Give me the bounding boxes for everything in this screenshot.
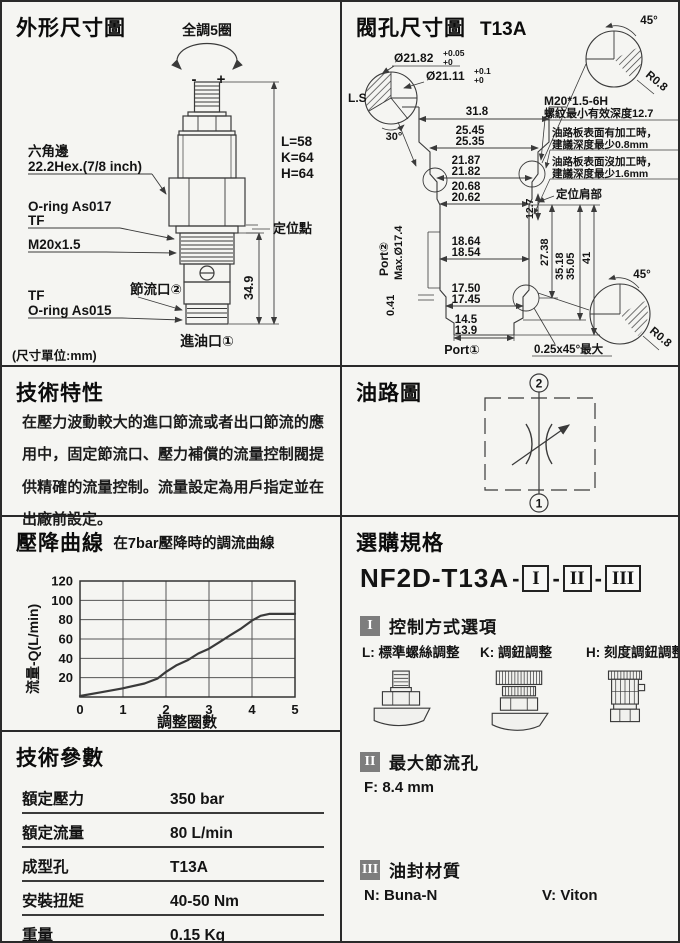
section3-heading: III 油封材質 [360,857,461,882]
outline-drawing: 全調5圈 - + 六角邊 22.2Hex.(7/8 inch) L=58 K=6… [2,2,342,367]
svg-text:20: 20 [59,670,73,685]
hex-label-size: 22.2Hex.(7/8 inch) [28,159,142,174]
angle-30: 30° [386,131,403,143]
turns-label: 全調5圈 [181,22,232,38]
dia1-label: Ø21.82 [394,51,434,65]
section2-heading: II 最大節流孔 [360,749,479,774]
param-value: 350 bar [170,791,224,809]
svg-text:4: 4 [248,702,256,717]
param-value: 80 L/min [170,825,233,843]
cavity-title-text: 閥孔尺寸圖 [356,17,466,40]
chart-title: 在7bar壓降時的調流曲線 [113,534,275,552]
model-segment-3: III [605,565,641,592]
option-K: K: 調鈕調整 [480,641,586,735]
model-code: NF2D-T13A - I - II - III [360,563,641,594]
orifice-value: F: 8.4 mm [364,779,434,796]
param-value: 0.15 Kg [170,927,225,943]
circuit-panel-title: 油路圖 [356,377,422,407]
machined-note-2: 建議深度最少0.8mm [551,138,648,151]
ls-label: L.S [348,91,367,105]
dim-041: 0.41 [385,295,397,316]
section1-heading: I 控制方式選項 [360,613,497,638]
dim-H: H=64 [281,166,314,181]
param-label: 安裝扭矩 [22,889,170,911]
unmachined-note-2: 建議深度最少1.6mm [551,167,648,180]
panel-cavity-dimensions: L.S Ø21.82 +0.05 +0 Ø21.11 +0.1 +0 30° 4… [342,2,680,367]
shoulder-label: 定位肩部 [556,187,602,201]
r08-top: R0.8 [643,69,670,94]
seal-option-n: N: Buna-N [364,887,437,904]
svg-text:1: 1 [119,702,126,717]
panel-ordering-info: 選購規格 NF2D-T13A - I - II - III I 控制方式選項 L… [342,517,680,943]
panel-circuit-diagram: 2 1 油路圖 [342,367,680,517]
minus-sign: - [192,71,197,88]
dim-2182: 21.82 [452,166,481,178]
dim-2535: 25.35 [456,136,485,148]
circuit-port1: 1 [536,497,543,511]
dim-1745: 17.45 [452,294,481,306]
dim-3505: 35.05 [565,252,577,280]
option-L: L: 標準螺絲調整 [362,641,480,735]
max-dia-label: Max.Ø17.4 [393,225,405,280]
option-H-label: H: 刻度調鈕調整 [586,641,672,661]
model-base: NF2D-T13A [360,563,509,594]
section2-label: 最大節流孔 [389,749,479,774]
table-row: 安裝扭矩 40-50 Nm [22,882,324,916]
outline-panel-title: 外形尺寸圖 [16,12,126,42]
circuit-symbol [485,374,595,512]
dia2-tol-lo: +0 [474,75,484,85]
option-K-label: K: 調鈕調整 [480,641,586,661]
angle-45-bottom: 45° [633,269,651,281]
table-row: 額定壓力 350 bar [22,780,324,814]
cavity-code: T13A [480,19,526,40]
section2-badge: II [360,752,380,772]
machined-note-1: 油路板表面有加工時， [552,126,657,139]
thread-spec: M20*1.5-6H [544,94,608,108]
chart-xlabel: 調整圈數 [157,713,217,731]
oring-bottom-label: O-ring As015 [28,303,112,318]
params-panel-title: 技術參數 [16,742,104,772]
plus-sign: + [217,71,226,88]
knob-adjust-icon [488,669,586,735]
params-table: 額定壓力 350 bar 額定流量 80 L/min 成型孔 T13A 安裝扭矩… [22,780,324,943]
param-value: 40-50 Nm [170,893,239,911]
dash-3: - [595,566,602,592]
datasheet-page: 全調5圈 - + 六角邊 22.2Hex.(7/8 inch) L=58 K=6… [0,0,680,943]
oring-top-label: O-ring As017 [28,199,112,214]
thread-label: M20x1.5 [28,237,81,252]
section3-label: 油封材質 [389,857,461,882]
locating-point-label: 定位點 [272,221,312,236]
screw-adjust-icon [370,669,480,735]
model-segment-2: II [563,565,592,592]
dim-2738: 27.38 [539,238,551,266]
angle-45-top: 45° [640,15,658,27]
model-segment-1: I [522,565,549,592]
section1-badge: I [360,616,380,636]
dim-41: 41 [581,252,593,264]
table-row: 額定流量 80 L/min [22,814,324,848]
option-L-label: L: 標準螺絲調整 [362,641,480,661]
param-value: T13A [170,859,208,877]
svg-text:60: 60 [59,632,73,647]
features-panel-title: 技術特性 [16,377,104,407]
dim-L: L=58 [281,134,313,149]
cavity-panel-title: 閥孔尺寸圖T13A [356,12,526,42]
svg-text:80: 80 [59,612,73,627]
control-options: L: 標準螺絲調整 K: 調鈕調整 [362,641,672,735]
inlet-port-label: 進油口① [180,333,234,349]
panel-technical-features: 技術特性 在壓力波動較大的進口節流或者出口節流的應用中，固定節流口、壓力補償的流… [2,367,342,517]
dim-1854: 18.54 [452,247,481,259]
dash-1: - [512,566,519,592]
svg-text:100: 100 [51,593,73,608]
section3-badge: III [360,860,380,880]
table-row: 重量 0.15 Kg [22,916,324,943]
param-label: 額定壓力 [22,787,170,809]
dia1-tol-lo: +0 [443,57,453,67]
dia2-label: Ø21.11 [426,69,465,83]
port1-label: Port① [444,343,480,357]
svg-text:120: 120 [51,574,73,589]
seal-option-v: V: Viton [542,887,598,904]
curve-panel-title: 壓降曲線 [16,527,104,557]
ordering-panel-title: 選購規格 [356,527,444,557]
chart-plot-area: 01234520406080100120 [51,574,298,718]
throttle-port-label: 節流口② [130,281,182,297]
param-label: 重量 [22,923,170,943]
svg-text:0: 0 [76,702,83,717]
oring-bottom-tf: TF [28,288,45,303]
dim-2062: 20.62 [452,192,481,204]
param-label: 額定流量 [22,821,170,843]
r08-bottom: R0.8 [647,325,674,350]
cavity-drawing: L.S Ø21.82 +0.05 +0 Ø21.11 +0.1 +0 30° 4… [342,2,680,367]
unmachined-note-1: 油路板表面沒加工時， [552,155,657,168]
panel-technical-parameters: 技術參數 額定壓力 350 bar 額定流量 80 L/min 成型孔 T13A… [2,732,342,943]
svg-text:40: 40 [59,651,73,666]
dim-349: 34.9 [242,276,256,300]
table-row: 成型孔 T13A [22,848,324,882]
circuit-port2: 2 [536,377,543,391]
chamfer-label: 0.25x45°最大 [534,342,604,356]
graduated-knob-icon [594,669,672,735]
param-label: 成型孔 [22,855,170,877]
unit-note: (尺寸單位:mm) [12,348,97,363]
thread-depth-note: 螺紋最小有效深度12.7 [544,106,653,120]
panel-outline-dimensions: 全調5圈 - + 六角邊 22.2Hex.(7/8 inch) L=58 K=6… [2,2,342,367]
section1-label: 控制方式選項 [389,613,497,638]
hex-label-cn: 六角邊 [28,143,69,159]
dim-318: 31.8 [466,106,489,118]
chart-ylabel: 流量-Q(L/min) [25,604,41,694]
dim-K: K=64 [281,150,314,165]
cavity-profile [365,26,659,350]
oring-top-tf: TF [28,213,45,228]
svg-text:5: 5 [291,702,298,717]
option-H: H: 刻度調鈕調整 [586,641,672,735]
port2-label: Port② [377,242,391,276]
dim-127: 12.7 [524,198,536,219]
dash-2: - [552,566,559,592]
dim-139: 13.9 [455,325,477,337]
panel-pressure-drop-curve: 01234520406080100120 在7bar壓降時的調流曲線 調整圈數 … [2,517,342,732]
